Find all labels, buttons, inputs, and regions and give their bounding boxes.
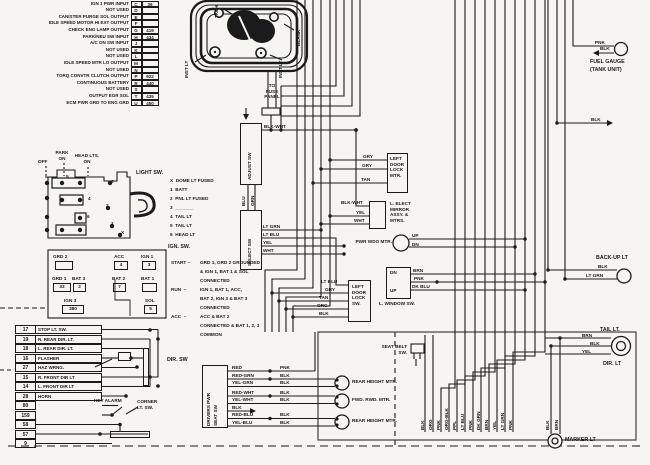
fuse-label: FLASHER: [36, 354, 102, 363]
ecm-row-label: IDLE SPEED MTR LO OUTPUT: [0, 60, 131, 67]
bus-wire-label: BLK: [420, 420, 426, 430]
fuel-gauge-sublabel: (TANK UNIT): [590, 67, 622, 73]
wire-label: LT GRN: [586, 273, 603, 279]
fuse-number: 9: [15, 439, 36, 448]
ecm-pin: T: [131, 93, 142, 100]
wire-label: BLK: [598, 264, 608, 270]
ign-mode-text: ACC & BAT 2 CONNECTED & BAT 1, 2, 3 COMM…: [200, 312, 259, 339]
fuse-number: 17: [15, 325, 36, 334]
wire-label: YEL-WHT: [232, 397, 253, 403]
ign-mode: RUN –: [171, 285, 186, 294]
ecm-row-label: NOT USED: [0, 67, 131, 74]
contact-number: 6: [87, 214, 90, 220]
ecm-row-label: ECM PWR GRD TO ENG GRD: [0, 100, 131, 107]
ecm-pin: F: [131, 20, 142, 27]
ecm-row-label: A/C ON SW INPUT: [0, 40, 131, 47]
wire-label: YEL: [582, 349, 591, 355]
fuse-label: [36, 411, 102, 420]
wire-label: GRN: [250, 196, 256, 206]
bus-wire-label: ORG: [428, 419, 434, 430]
light-sw-legend-item: 2 PNL LT FUSED: [170, 196, 208, 202]
bus-wire-label: BRN: [484, 420, 490, 430]
bus-wire-label: PNK: [436, 420, 442, 430]
wire-label: DN: [390, 270, 397, 276]
bus-wire-label: LT GRN: [500, 413, 506, 430]
wire-label: TAN: [319, 295, 328, 301]
contact-number: 4: [88, 196, 91, 202]
ecm-wire: [142, 47, 159, 54]
contact-number: 2: [106, 203, 109, 209]
wire-label: BLK: [280, 373, 290, 379]
fuse-label: STOP LT. SW.: [36, 325, 102, 334]
wire-label: BLK: [280, 412, 290, 418]
wire-label: YEL-BLU: [232, 420, 252, 426]
fuse-number: 15: [15, 373, 36, 382]
bus-wire-label: DK GRN: [476, 412, 482, 431]
ecm-wire: 434: [142, 34, 159, 41]
mirror-assy-box: [369, 201, 386, 229]
corner-lt-sw-label: CORNER LT. SW.: [137, 399, 157, 410]
to-fuse-panel-label: TO FUSE PANEL: [257, 83, 287, 100]
seat-motor-label: FWD. RWD. MTR.: [352, 397, 390, 403]
wire-label: RED: [232, 365, 242, 371]
ecm-pin: U: [131, 100, 142, 107]
light-sw-legend-item: 6 HEAD LT: [170, 232, 195, 238]
light-sw-title: LIGHT SW.: [136, 170, 163, 176]
driver-seat-sw-label: DRIVERS PWR SEAT SW: [206, 393, 220, 426]
ecm-pin: K: [131, 47, 142, 54]
dir-sw-contact-bar: [143, 348, 149, 386]
ecm-wire: [142, 86, 159, 93]
wire-label: GRY: [363, 154, 373, 160]
ign-terminal-name: BAT 1: [141, 276, 154, 282]
ign-terminal-name: BAT 2: [112, 276, 125, 282]
ecm-pin: C: [131, 1, 142, 8]
ign-terminal-box: 3: [142, 261, 156, 270]
contact-number: 1: [111, 221, 114, 227]
seat-belt-sw-label: SEAT BELT SW.: [375, 344, 407, 355]
wire-label: GRY: [325, 287, 335, 293]
ecm-pin: L: [131, 53, 142, 60]
ecm-wire: 39: [142, 1, 159, 8]
contact-number: 5: [66, 174, 69, 180]
fuse-label: HORN: [36, 392, 102, 401]
wire-label: WHT: [263, 248, 274, 254]
ign-mode: ACC –: [171, 312, 186, 321]
wire-label: YEL-GRN: [232, 380, 253, 386]
light-sw-park-label: PARK ON: [53, 150, 71, 161]
wire-label: BLK: [319, 311, 329, 317]
mirror-assy-label: L. ELECT MIRROR ASSY. & MTRS.: [390, 201, 411, 223]
wire-label: RED-BLU: [232, 412, 253, 418]
ecm-row-label: NOT USED: [0, 53, 131, 60]
wire-label: BRN: [554, 420, 560, 430]
wire-label: RED-GRN: [232, 373, 254, 379]
wire-label: BLK-WHT: [264, 124, 286, 130]
ign-terminal-name: BAT 3: [72, 276, 85, 282]
fuse-label: HAZ WRNG.: [36, 363, 102, 372]
wire-label: LT GRN: [263, 224, 280, 230]
light-sw-legend-item: 3 _______: [170, 205, 193, 211]
corner-sw-bar: [110, 431, 150, 438]
fuse-number: 58: [15, 420, 36, 429]
ign-terminal-box: [142, 283, 157, 292]
adjust-sw-label: ADJUST SW: [247, 152, 253, 180]
ecm-pin: G: [131, 27, 142, 34]
light-sw-legend-item: 1 BATT: [170, 187, 187, 193]
ecm-pin: S: [131, 86, 142, 93]
wire-label: BLK: [280, 380, 290, 386]
wire-label: BLK: [280, 420, 290, 426]
wire-label: ORG: [317, 303, 328, 309]
ecm-pin: P: [131, 73, 142, 80]
ecm-wire: 922: [142, 73, 159, 80]
ecm-wire: 419: [142, 27, 159, 34]
ecm-wire: [142, 67, 159, 74]
ecm-row-label: CANISTER PURGE SOL OUTPUT: [0, 14, 131, 21]
ecm-pin: R: [131, 80, 142, 87]
ecm-wire: 450: [142, 100, 159, 107]
wire-label: DN: [412, 242, 419, 248]
ign-sw-notes-title: IGN. SW.: [168, 244, 190, 250]
bus-wire-label: LT BLU: [460, 414, 466, 430]
key-alarm-label: KEY ALARM: [94, 398, 122, 404]
fuse-label: L. FRONT DIR LT: [36, 382, 102, 391]
wire-label: DK BLU: [412, 284, 430, 290]
left-door-lock-motor-label: LEFT DOOR LOCK MTR.: [390, 156, 404, 178]
tail-lt-label: TAIL LT.: [600, 327, 620, 333]
bus-wire-label: PNK: [508, 420, 514, 430]
fuse-label: R. REAR DIR. LT.: [36, 335, 102, 344]
ecm-pin: E: [131, 14, 142, 21]
fuse-label: L. REAR DIR. LT.: [36, 344, 102, 353]
wire-label: YEL: [356, 210, 365, 216]
ign-terminal-name: GRD 2: [53, 254, 67, 260]
fuse-number: 14: [15, 382, 36, 391]
marker-lt-label: MARKER LT: [565, 437, 596, 443]
ign-terminal-box: 380: [62, 305, 84, 314]
wire-label: UP: [390, 288, 397, 294]
ecm-pin: J: [131, 40, 142, 47]
ecm-row-label: IGN 1 PWR INPUT: [0, 1, 131, 8]
wire-label: BLK: [280, 397, 290, 403]
flasher-component: [118, 352, 131, 361]
seat-motor-label: REAR HEIGHT MTR.: [352, 418, 397, 424]
ecm-pin: N: [131, 67, 142, 74]
contact-number: 3: [111, 179, 114, 185]
bus-wire-label: ORG-BLK: [444, 408, 450, 430]
ecm-wire: 440: [142, 80, 159, 87]
fuel-gauge-label: FUEL GAUGE: [590, 59, 625, 65]
ecm-row-label: IDLE SPEED MOTOR HI EXT OUTPUT: [0, 20, 131, 27]
ign-terminal-box: [55, 261, 73, 270]
ign-terminal-box: 5: [144, 305, 157, 314]
wire-label: BLK: [232, 405, 242, 411]
ign-terminal-box: 4: [114, 261, 128, 270]
left-door-lock-sw-label: LEFT DOOR LOCK SW.: [352, 284, 366, 306]
wire-label: PNK: [280, 365, 290, 371]
window-sw-label: L. WINDOW SW.: [379, 301, 415, 307]
ecm-wire: [142, 40, 159, 47]
fuse-number: 19: [15, 335, 36, 344]
bus-wire-label: YEL: [492, 421, 498, 430]
wire-label: PNK: [414, 276, 424, 282]
inst-lt-left-label: INST LT: [184, 61, 190, 78]
ign-terminal-name: GRD 1: [52, 276, 66, 282]
tach-label: TACH: [214, 5, 220, 18]
ecm-row-label: TORQ CONVTR CLUTCH OUTPUT: [0, 73, 131, 80]
ign-terminal-box: 33: [53, 283, 71, 292]
pwr-window-motor-label: PWR WDO MTR.: [348, 239, 392, 245]
wire-label: BLK: [600, 46, 610, 52]
wire-label: YEL: [263, 240, 272, 246]
wire-label: RED-WHT: [232, 390, 254, 396]
wire-label: GRY: [362, 163, 372, 169]
bus-wire-label: PNK: [468, 420, 474, 430]
ecm-pin: H: [131, 34, 142, 41]
seat-motor-label: REAR HEIGHT MTR.: [352, 379, 397, 385]
dir-lt-label: DIR. LT: [603, 361, 621, 367]
ign-terminal-name: IGN 1: [141, 254, 153, 260]
ecm-row-label: NOT USED: [0, 7, 131, 14]
fuse-label: [36, 401, 102, 410]
wire-label: BLU: [241, 196, 247, 206]
ign-terminal-name: IGN 3: [64, 298, 76, 304]
ign-mode-text: IGN 1, BAT 1, ACC, BAT 2, IGN 3 & BAT 3 …: [200, 285, 247, 312]
fuse-number: 80: [15, 401, 36, 410]
wire-label: BLK: [591, 117, 601, 123]
fuse-number: 57: [15, 430, 36, 439]
contact-number: X: [121, 230, 124, 236]
wire-label: BRN: [582, 333, 592, 339]
wire-label: WHT: [354, 218, 365, 224]
ign-terminal-box: 2: [73, 283, 86, 292]
fuse-number: 28: [15, 392, 36, 401]
wiring-diagram-page: IGN 1 PWR INPUTC39 NOT USEDD CANISTER PU…: [0, 0, 650, 465]
dir-sw-label: DIR. SW: [167, 357, 188, 363]
wire-label: BLK-WHT: [341, 200, 363, 206]
ecm-row-label: NOT USED: [0, 86, 131, 93]
ecm-pin: D: [131, 7, 142, 14]
wire-label: TAN: [361, 177, 370, 183]
light-sw-off-label: OFF: [38, 159, 47, 165]
inst-lt-right-label: INST LT: [278, 61, 284, 78]
ecm-wire: [142, 20, 159, 27]
fuse-number: 27: [15, 363, 36, 372]
light-sw-head-label: HEAD LTS. ON: [74, 153, 100, 164]
ecm-row-label: PARK/NEU SW INPUT: [0, 34, 131, 41]
ecm-wire: [142, 53, 159, 60]
ecm-row-label: NOT USED: [0, 47, 131, 54]
ecm-wire: [142, 14, 159, 21]
wire-label: PNK: [595, 40, 605, 46]
ecm-wire: [142, 60, 159, 67]
ign-terminal-name: ACC: [114, 254, 124, 260]
select-sw-label: SELECT SW: [247, 239, 253, 266]
wire-label: LT BLU: [321, 279, 337, 285]
light-sw-legend-item: X DOME LT FUSED: [170, 178, 214, 184]
fuse-label: R. FRONT DIR LT: [36, 373, 102, 382]
wire-label: UP: [412, 233, 419, 239]
light-sw-legend-item: 4 TAIL LT: [170, 214, 192, 220]
ecm-pin: M: [131, 60, 142, 67]
backup-lt-label: BACK-UP LT: [596, 255, 628, 261]
bus-wire-label: PPL: [452, 421, 458, 430]
light-sw-legend-item: 5 TAIL LT: [170, 223, 192, 229]
blank-label: BLANK: [296, 30, 302, 46]
ecm-row-label: CHECK ENG LAMP OUTPUT: [0, 27, 131, 34]
fuse-number: 18: [15, 344, 36, 353]
ecm-row-label: OUTPUT EGR SOL: [0, 93, 131, 100]
wire-label: BRN: [413, 268, 423, 274]
ecm-wire: 435: [142, 93, 159, 100]
ecm-row-label: CONTINUOUS BATTERY: [0, 80, 131, 87]
wire-label: LT BLU: [263, 232, 279, 238]
fuse-number: 16: [15, 354, 36, 363]
ecm-wire: [142, 7, 159, 14]
ign-terminal-name: SOL: [145, 298, 155, 304]
ign-terminal-box: 7: [113, 283, 126, 292]
wire-label: BLK: [280, 390, 290, 396]
fuse-number: 159: [15, 411, 36, 420]
wire-label: BLK: [545, 420, 551, 430]
wire-label: BLK: [590, 341, 600, 347]
ign-mode: START –: [171, 258, 190, 267]
